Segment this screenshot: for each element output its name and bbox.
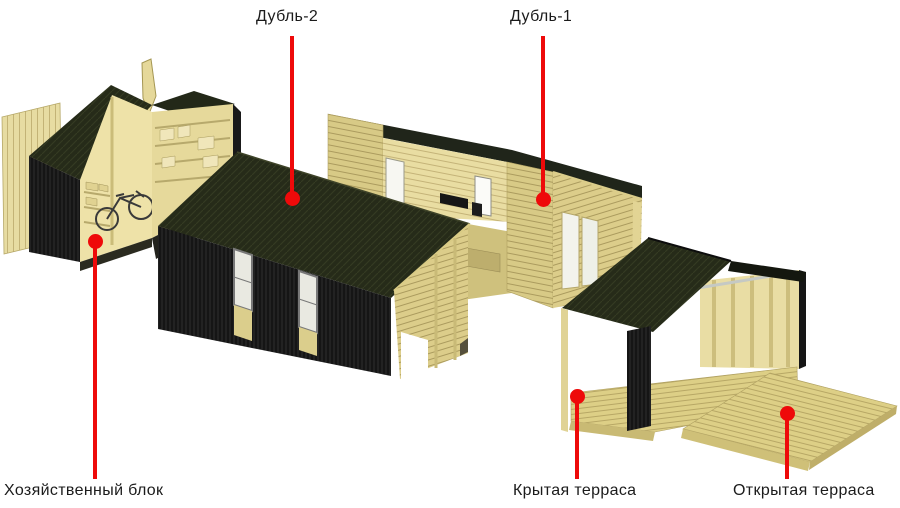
callout-dot-dubl-2 xyxy=(285,191,300,206)
callout-line-dubl-1 xyxy=(541,36,545,200)
callout-label-open-terrace: Открытая терраса xyxy=(733,482,875,500)
callout-dot-covered-terrace xyxy=(570,389,585,404)
callout-line-dubl-2 xyxy=(290,36,294,198)
callout-line-utility-block xyxy=(93,243,97,479)
callout-dot-dubl-1 xyxy=(536,192,551,207)
callout-label-dubl-2: Дубль-2 xyxy=(256,8,318,26)
callout-label-covered-terrace: Крытая терраса xyxy=(513,482,636,500)
scene-render xyxy=(0,0,900,508)
callout-dot-utility-block xyxy=(88,234,103,249)
callout-dot-open-terrace xyxy=(780,406,795,421)
diagram-root: Дубль-2 Дубль-1 Хозяйственный блок Крыта… xyxy=(0,0,900,508)
callout-label-dubl-1: Дубль-1 xyxy=(510,8,572,26)
callout-line-covered-terrace xyxy=(575,396,579,479)
callout-line-open-terrace xyxy=(785,413,789,479)
callout-label-utility-block: Хозяйственный блок xyxy=(4,482,163,500)
